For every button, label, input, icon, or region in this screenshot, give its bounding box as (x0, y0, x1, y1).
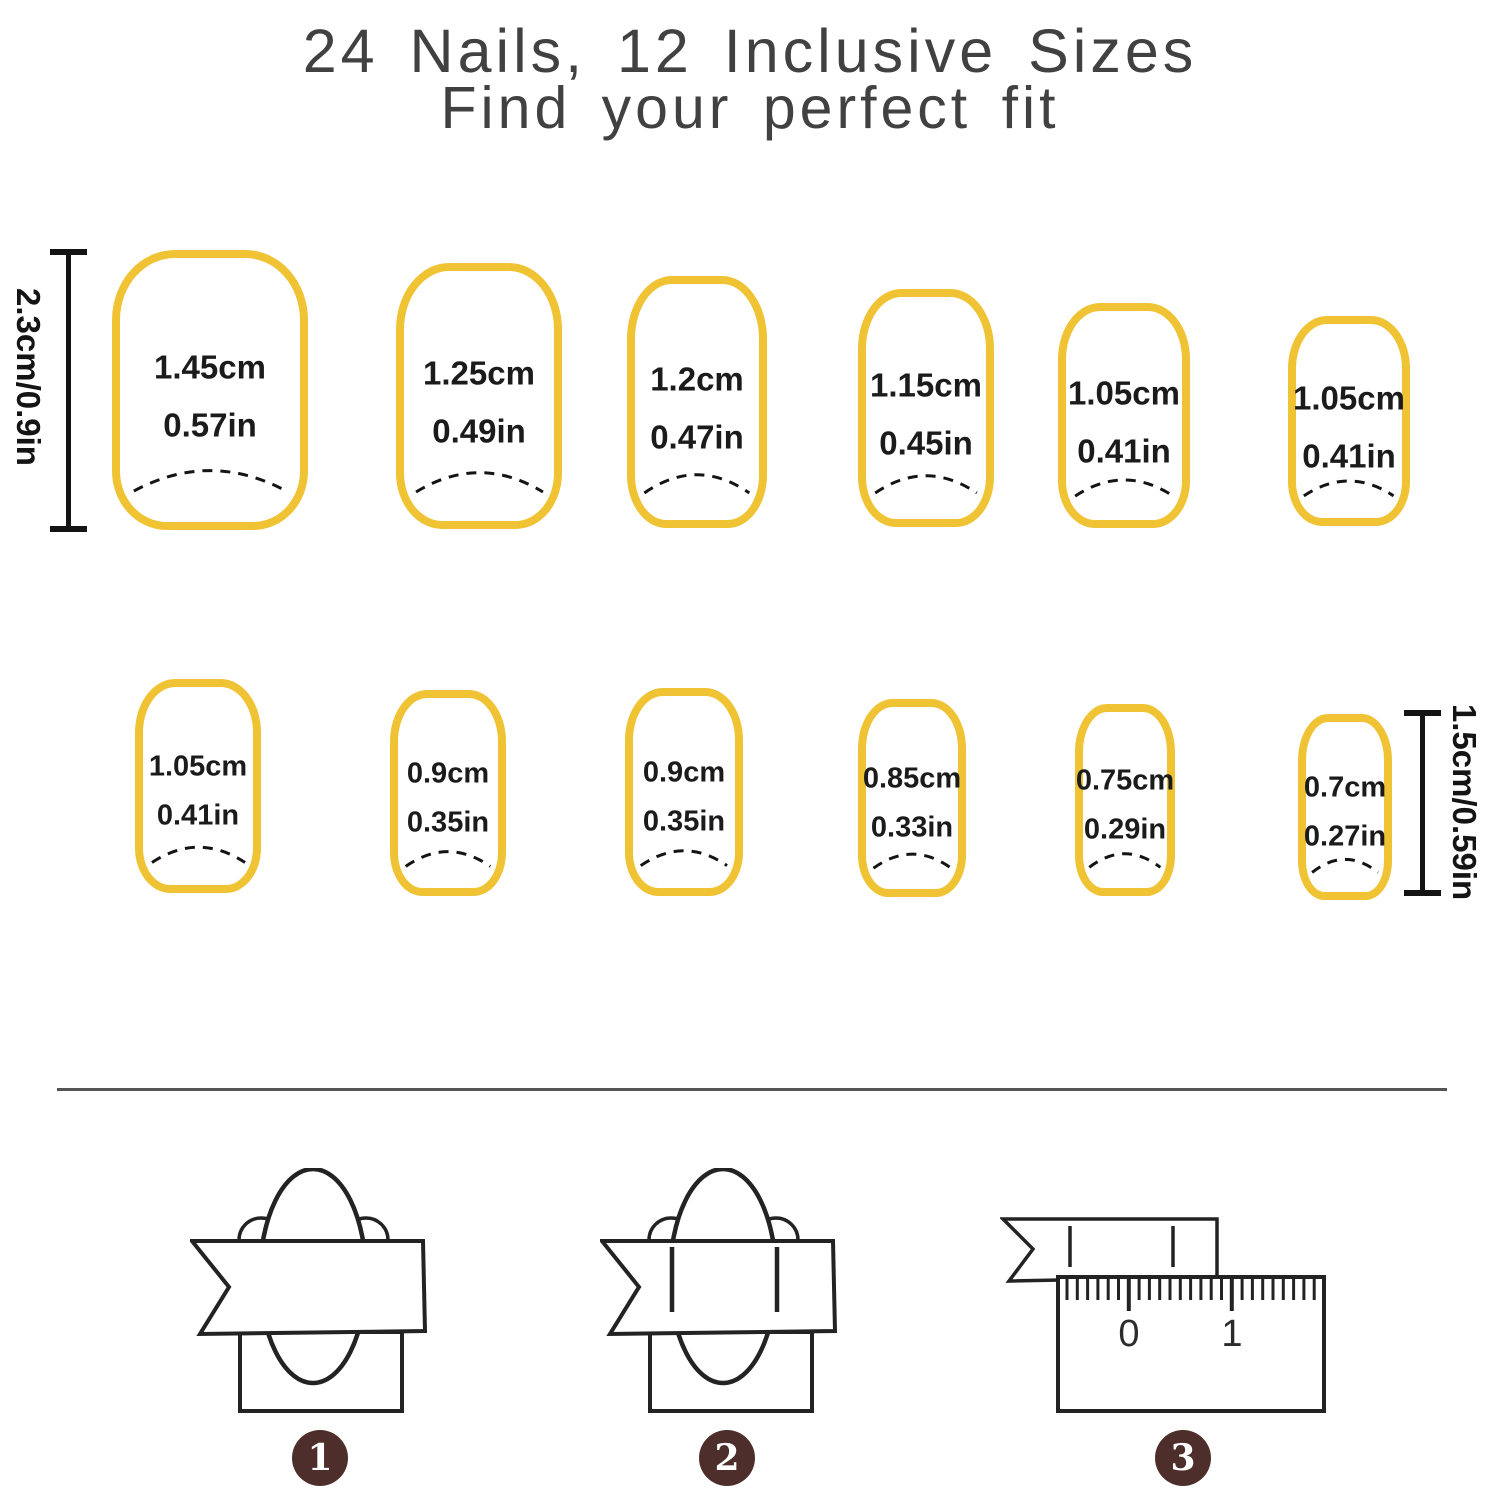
title-line-1: 24 Nails, 12 Inclusive Sizes (0, 22, 1500, 80)
nail-size-inch: 0.57in (163, 407, 257, 445)
smile-line (1087, 842, 1163, 870)
nail-size-labels: 0.7cm0.27in (1304, 772, 1386, 854)
sizing-ribbon (1003, 1219, 1217, 1281)
nail-row1-2: 1.25cm0.49in (396, 263, 562, 529)
smile-line (872, 461, 980, 497)
nail-size-labels: 1.25cm0.49in (423, 355, 535, 451)
nail-size-inch: 0.33in (871, 812, 953, 845)
smile-line (403, 839, 493, 869)
nail-size-labels: 1.05cm0.41in (1068, 374, 1180, 470)
right-measure-label: 1.5cm/0.59in (1445, 704, 1483, 900)
nail-size-inch: 0.45in (879, 425, 973, 463)
smile-line-path (406, 851, 491, 866)
smile-line-path (1075, 480, 1173, 496)
smile-line (1072, 466, 1176, 499)
title: 24 Nails, 12 Inclusive Sizes Find your p… (0, 22, 1500, 136)
nail-row2-3: 0.9cm0.35in (625, 688, 743, 896)
nail-size-inch: 0.35in (643, 806, 725, 839)
right-measure-bar-bottom-cap (1404, 890, 1441, 896)
nail-size-labels: 1.05cm0.41in (1293, 380, 1405, 476)
smile-line-path (151, 847, 244, 862)
smile-line (871, 842, 954, 871)
smile-line-path (134, 471, 286, 491)
diagram-step2-mark-width (600, 1168, 845, 1418)
sizing-ribbon (602, 1241, 835, 1334)
left-measure-bar (66, 252, 71, 530)
smile-line-path (1304, 481, 1394, 496)
nail-row1-3: 1.2cm0.47in (627, 276, 767, 528)
smile-line-path (1089, 854, 1160, 868)
nail-size-labels: 1.05cm0.41in (149, 751, 247, 833)
nail-row2-4: 0.85cm0.33in (858, 699, 966, 897)
nail-size-infographic: 24 Nails, 12 Inclusive Sizes Find your p… (0, 0, 1500, 1500)
smile-line (638, 838, 730, 869)
nail-size-labels: 1.2cm0.47in (650, 361, 744, 457)
nail-row1-6: 1.05cm0.41in (1288, 316, 1410, 526)
nail-size-labels: 0.85cm0.33in (863, 763, 961, 845)
step-3-badge: 3 (1155, 1430, 1211, 1486)
section-divider (57, 1088, 1447, 1091)
left-measure-bar-bottom-cap (50, 526, 87, 532)
nail-size-labels: 0.9cm0.35in (407, 758, 489, 840)
nail-size-cm: 1.25cm (423, 355, 535, 393)
smile-line (149, 834, 248, 866)
smile-line (641, 459, 753, 497)
nail-row2-6: 0.7cm0.27in (1298, 714, 1392, 900)
nail-size-labels: 0.9cm0.35in (643, 757, 725, 839)
nail-size-cm: 1.2cm (650, 361, 744, 399)
smile-line (129, 453, 291, 495)
step-2-badge: 2 (699, 1430, 755, 1486)
nail-size-cm: 1.45cm (154, 349, 266, 387)
sizing-ribbon (192, 1241, 425, 1334)
nail-row1-4: 1.15cm0.45in (858, 289, 994, 527)
smile-line (1301, 468, 1396, 499)
nail-size-cm: 0.7cm (1304, 772, 1386, 805)
nail-size-cm: 1.05cm (1068, 374, 1180, 412)
nail-row2-2: 0.9cm0.35in (390, 690, 506, 896)
ruler-label-0: 0 (1118, 1313, 1139, 1355)
title-line-2: Find your perfect fit (0, 80, 1500, 136)
nail-row1-1: 1.45cm0.57in (112, 250, 308, 530)
smile-line-path (641, 851, 727, 866)
nail-size-inch: 0.35in (407, 807, 489, 840)
ruler-label-1: 1 (1221, 1313, 1242, 1355)
nail-row1-5: 1.05cm0.41in (1058, 303, 1190, 528)
diagram-step1-wrap-finger (190, 1168, 435, 1418)
right-measure-bar (1420, 713, 1425, 893)
smile-line-path (416, 473, 543, 492)
nail-size-inch: 0.49in (432, 413, 526, 451)
nail-row2-1: 1.05cm0.41in (135, 679, 261, 893)
nail-size-inch: 0.41in (157, 800, 239, 833)
diagram-step3-measure-ruler: 0 1 (1000, 1213, 1330, 1418)
smile-line (1310, 848, 1380, 875)
left-measure-label: 2.3cm/0.9in (9, 288, 47, 466)
nail-size-inch: 0.47in (650, 419, 744, 457)
nail-size-labels: 1.15cm0.45in (870, 367, 982, 463)
step-1-badge: 1 (292, 1430, 348, 1486)
smile-line-path (645, 474, 750, 492)
nail-size-cm: 0.9cm (643, 757, 725, 790)
nail-size-cm: 1.05cm (1293, 380, 1405, 418)
nail-row2-5: 0.75cm0.29in (1075, 704, 1175, 896)
nail-size-cm: 1.05cm (149, 751, 247, 784)
nail-size-inch: 0.41in (1077, 432, 1171, 470)
nail-size-cm: 0.9cm (407, 758, 489, 791)
nail-size-labels: 1.45cm0.57in (154, 349, 266, 445)
smile-line-path (875, 476, 977, 493)
nail-size-cm: 1.15cm (870, 367, 982, 405)
smile-line-path (1312, 859, 1378, 872)
nail-size-cm: 0.75cm (1076, 765, 1174, 798)
nail-size-cm: 0.85cm (863, 763, 961, 796)
smile-line (412, 456, 547, 496)
smile-line-path (873, 854, 951, 868)
nail-size-labels: 0.75cm0.29in (1076, 765, 1174, 847)
